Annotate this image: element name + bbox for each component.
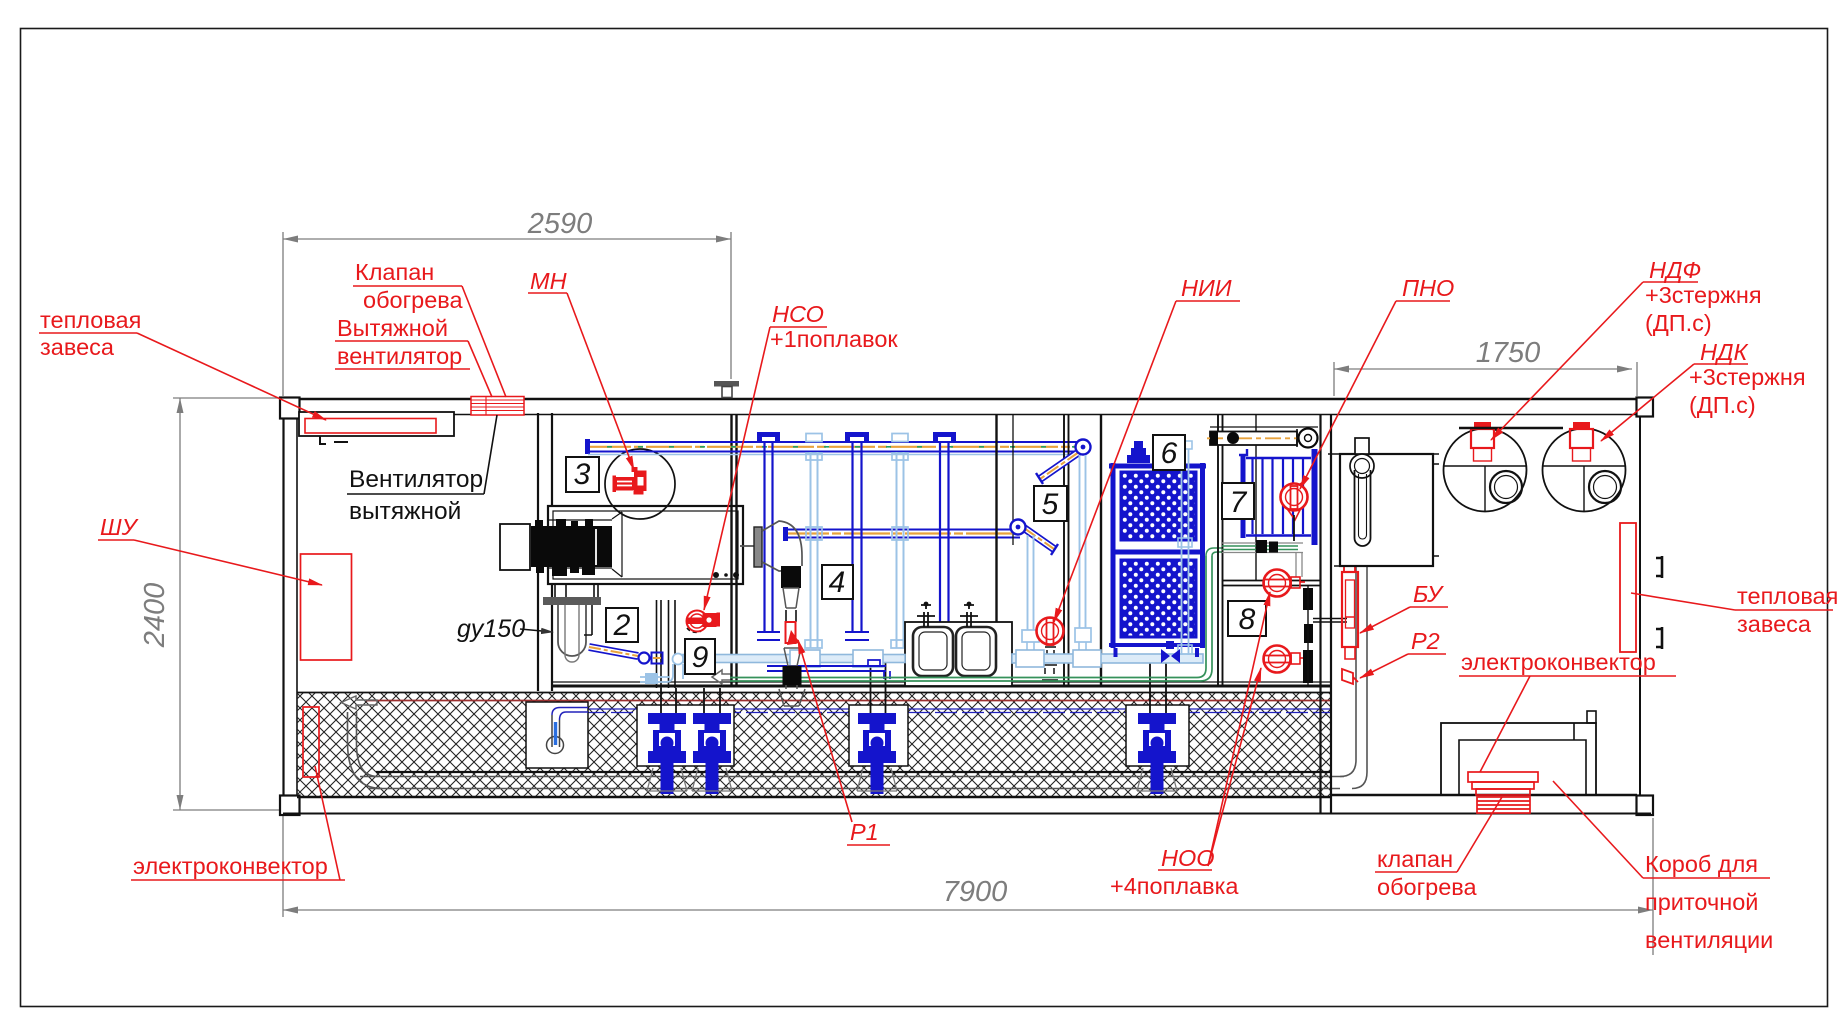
svg-text:клапан: клапан: [1377, 846, 1453, 872]
svg-text:8: 8: [1239, 603, 1256, 636]
svg-text:НОО: НОО: [1161, 845, 1215, 871]
svg-text:(ДП.с): (ДП.с): [1645, 310, 1712, 336]
svg-text:завеса: завеса: [1737, 611, 1812, 637]
svg-text:вентиляции: вентиляции: [1645, 927, 1773, 953]
svg-text:1750: 1750: [1476, 337, 1541, 369]
svg-text:9: 9: [692, 641, 709, 674]
svg-text:+4поплавка: +4поплавка: [1110, 873, 1239, 899]
svg-text:завеса: завеса: [40, 334, 115, 360]
svg-text:МН: МН: [530, 268, 567, 294]
svg-text:Короб для: Короб для: [1645, 851, 1758, 877]
svg-text:+1поплавок: +1поплавок: [770, 326, 898, 352]
svg-text:электроконвектор: электроконвектор: [1461, 649, 1656, 675]
svg-text:НДК: НДК: [1700, 339, 1749, 365]
svg-text:2400: 2400: [139, 583, 171, 649]
svg-text:тепловая: тепловая: [1737, 583, 1838, 609]
svg-text:+3стержня: +3стержня: [1689, 364, 1806, 390]
svg-text:2590: 2590: [527, 208, 593, 240]
svg-text:Р1: Р1: [850, 819, 879, 845]
svg-text:приточной: приточной: [1645, 889, 1758, 915]
svg-text:ПНО: ПНО: [1402, 275, 1454, 301]
svg-text:НИИ: НИИ: [1181, 275, 1232, 301]
svg-text:3: 3: [574, 458, 591, 491]
svg-text:6: 6: [1161, 437, 1178, 470]
svg-text:(ДП.с): (ДП.с): [1689, 392, 1756, 418]
svg-text:Вентилятор: Вентилятор: [349, 466, 483, 493]
svg-text:БУ: БУ: [1413, 581, 1444, 607]
svg-text:вентилятор: вентилятор: [337, 343, 462, 369]
svg-text:7: 7: [1230, 486, 1248, 519]
svg-text:Вытяжной: Вытяжной: [337, 315, 448, 341]
svg-text:2: 2: [613, 609, 631, 642]
svg-text:НДФ: НДФ: [1649, 257, 1701, 283]
svg-text:gy150: gy150: [457, 615, 525, 643]
svg-text:электроконвектор: электроконвектор: [133, 853, 328, 879]
svg-text:тепловая: тепловая: [40, 307, 141, 333]
svg-text:Клапан: Клапан: [355, 259, 434, 285]
svg-text:7900: 7900: [943, 876, 1008, 908]
svg-text:обогрева: обогрева: [1377, 874, 1478, 900]
svg-text:ШУ: ШУ: [100, 514, 139, 540]
svg-text:+3стержня: +3стержня: [1645, 282, 1762, 308]
svg-text:5: 5: [1042, 488, 1059, 521]
svg-text:4: 4: [829, 566, 846, 599]
svg-text:НСО: НСО: [772, 301, 824, 327]
svg-text:вытяжной: вытяжной: [349, 498, 461, 525]
svg-text:Р2: Р2: [1411, 628, 1440, 654]
svg-text:обогрева: обогрева: [363, 287, 464, 313]
